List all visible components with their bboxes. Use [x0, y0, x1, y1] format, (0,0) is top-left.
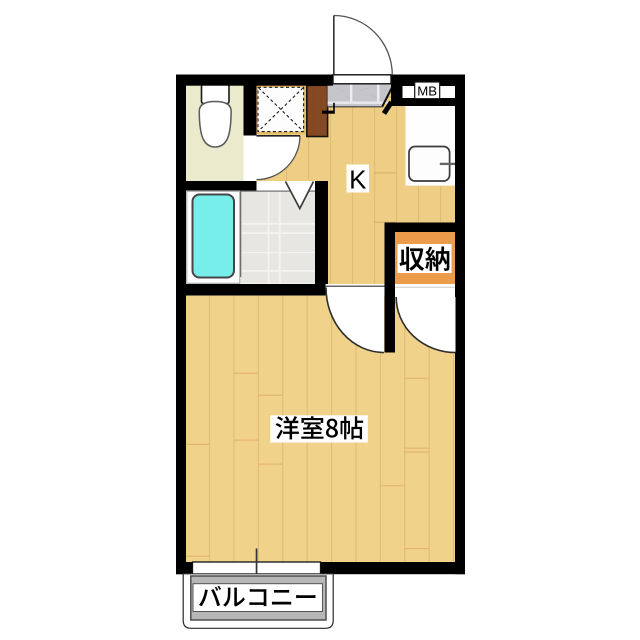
svg-text:K: K — [349, 164, 367, 194]
svg-text:MB: MB — [417, 83, 437, 98]
